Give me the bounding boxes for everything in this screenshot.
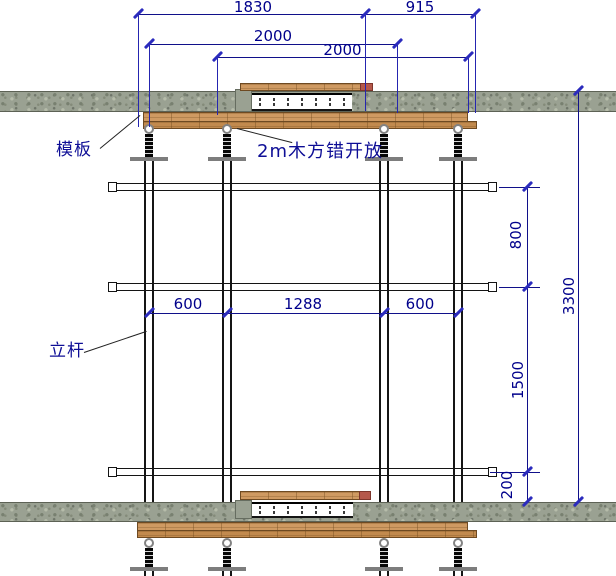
- extension-line: [475, 14, 476, 113]
- u-head-jack-lower: [439, 538, 477, 576]
- pole-stub: [144, 571, 154, 576]
- jack-plate: [130, 157, 168, 161]
- dimension-line: [578, 91, 579, 502]
- jack-ring-icon: [379, 124, 389, 134]
- beam-top-plank-bottom: [240, 491, 370, 500]
- ledger-level-2: [110, 283, 497, 291]
- dim-600-left: 600: [155, 297, 221, 311]
- u-head-jack: [130, 124, 168, 162]
- pole-stub: [453, 571, 463, 576]
- jack-ring-icon: [453, 124, 463, 134]
- dim-1830: 1830: [138, 0, 368, 14]
- dim-1288: 1288: [247, 297, 359, 311]
- ledger-level-1: [110, 183, 497, 191]
- ledger-end-cap: [108, 467, 117, 477]
- timber-beam-bottom-lower: [137, 530, 477, 538]
- dimension-line: [527, 187, 528, 502]
- extension-line: [138, 14, 139, 127]
- jack-ring-icon: [379, 538, 389, 548]
- jack-ring-icon: [144, 538, 154, 548]
- formwork-label: 模板: [56, 141, 92, 160]
- screw-coil: [454, 548, 462, 567]
- nail-ticks-row: [259, 511, 346, 514]
- dimension-line: [149, 313, 458, 314]
- jack-ring-icon: [453, 538, 463, 548]
- beam-end-block-top-right: [360, 83, 373, 91]
- screw-coil: [454, 134, 462, 157]
- screw-coil: [223, 134, 231, 157]
- u-head-jack: [439, 124, 477, 162]
- beam-side-block-top-left: [235, 89, 252, 112]
- pole-label: 立杆: [49, 342, 85, 361]
- ledger-end-cap: [488, 182, 497, 192]
- dim-200: 200: [500, 460, 514, 510]
- u-head-jack-lower: [130, 538, 168, 576]
- jack-plate: [208, 157, 246, 161]
- screw-coil: [145, 134, 153, 157]
- screw-coil: [223, 548, 231, 567]
- dim-800: 800: [509, 205, 523, 265]
- vertical-pole-2: [222, 161, 232, 502]
- extension-line: [149, 44, 150, 127]
- leader-line: [84, 331, 147, 353]
- dim-1500: 1500: [511, 350, 525, 410]
- nail-ticks-row: [259, 103, 345, 106]
- jack-ring-icon: [222, 124, 232, 134]
- screw-coil: [380, 548, 388, 567]
- ledger-end-cap: [108, 282, 117, 292]
- beam-side-block-bottom-left: [235, 500, 252, 519]
- ledger-end-cap: [108, 182, 117, 192]
- pole-stub: [379, 571, 389, 576]
- extension-line: [468, 57, 469, 113]
- ledger-level-3: [110, 468, 497, 476]
- u-head-jack-lower: [365, 538, 403, 576]
- jack-ring-icon: [222, 538, 232, 548]
- screw-coil: [145, 548, 153, 567]
- u-head-jack-lower: [208, 538, 246, 576]
- vertical-pole-4: [453, 161, 463, 502]
- nail-ticks-row: [259, 506, 346, 509]
- extension-stub: [499, 187, 540, 188]
- extension-stub: [499, 287, 540, 288]
- beam-end-block-bottom-right: [359, 491, 371, 500]
- dim-2000-b: 2000: [217, 43, 468, 57]
- jack-plate: [439, 157, 477, 161]
- vertical-pole-3: [379, 161, 389, 502]
- wood-note-label: 2m木方错开放: [257, 142, 383, 161]
- extension-line: [217, 57, 218, 115]
- nail-ticks-row: [259, 98, 345, 101]
- beam-formwork-box-top: [252, 93, 352, 111]
- dim-3300: 3300: [562, 261, 576, 331]
- beam-top-plank: [240, 83, 373, 91]
- ledger-end-cap: [488, 282, 497, 292]
- dim-915: 915: [365, 0, 475, 14]
- dim-600-right: 600: [386, 297, 454, 311]
- pole-stub: [222, 571, 232, 576]
- diagram-canvas: 1830 915 2000 2000 600 1288 600 800 1500…: [0, 0, 616, 576]
- beam-formwork-box-bottom: [252, 502, 353, 518]
- timber-beam-top-lower: [143, 121, 477, 129]
